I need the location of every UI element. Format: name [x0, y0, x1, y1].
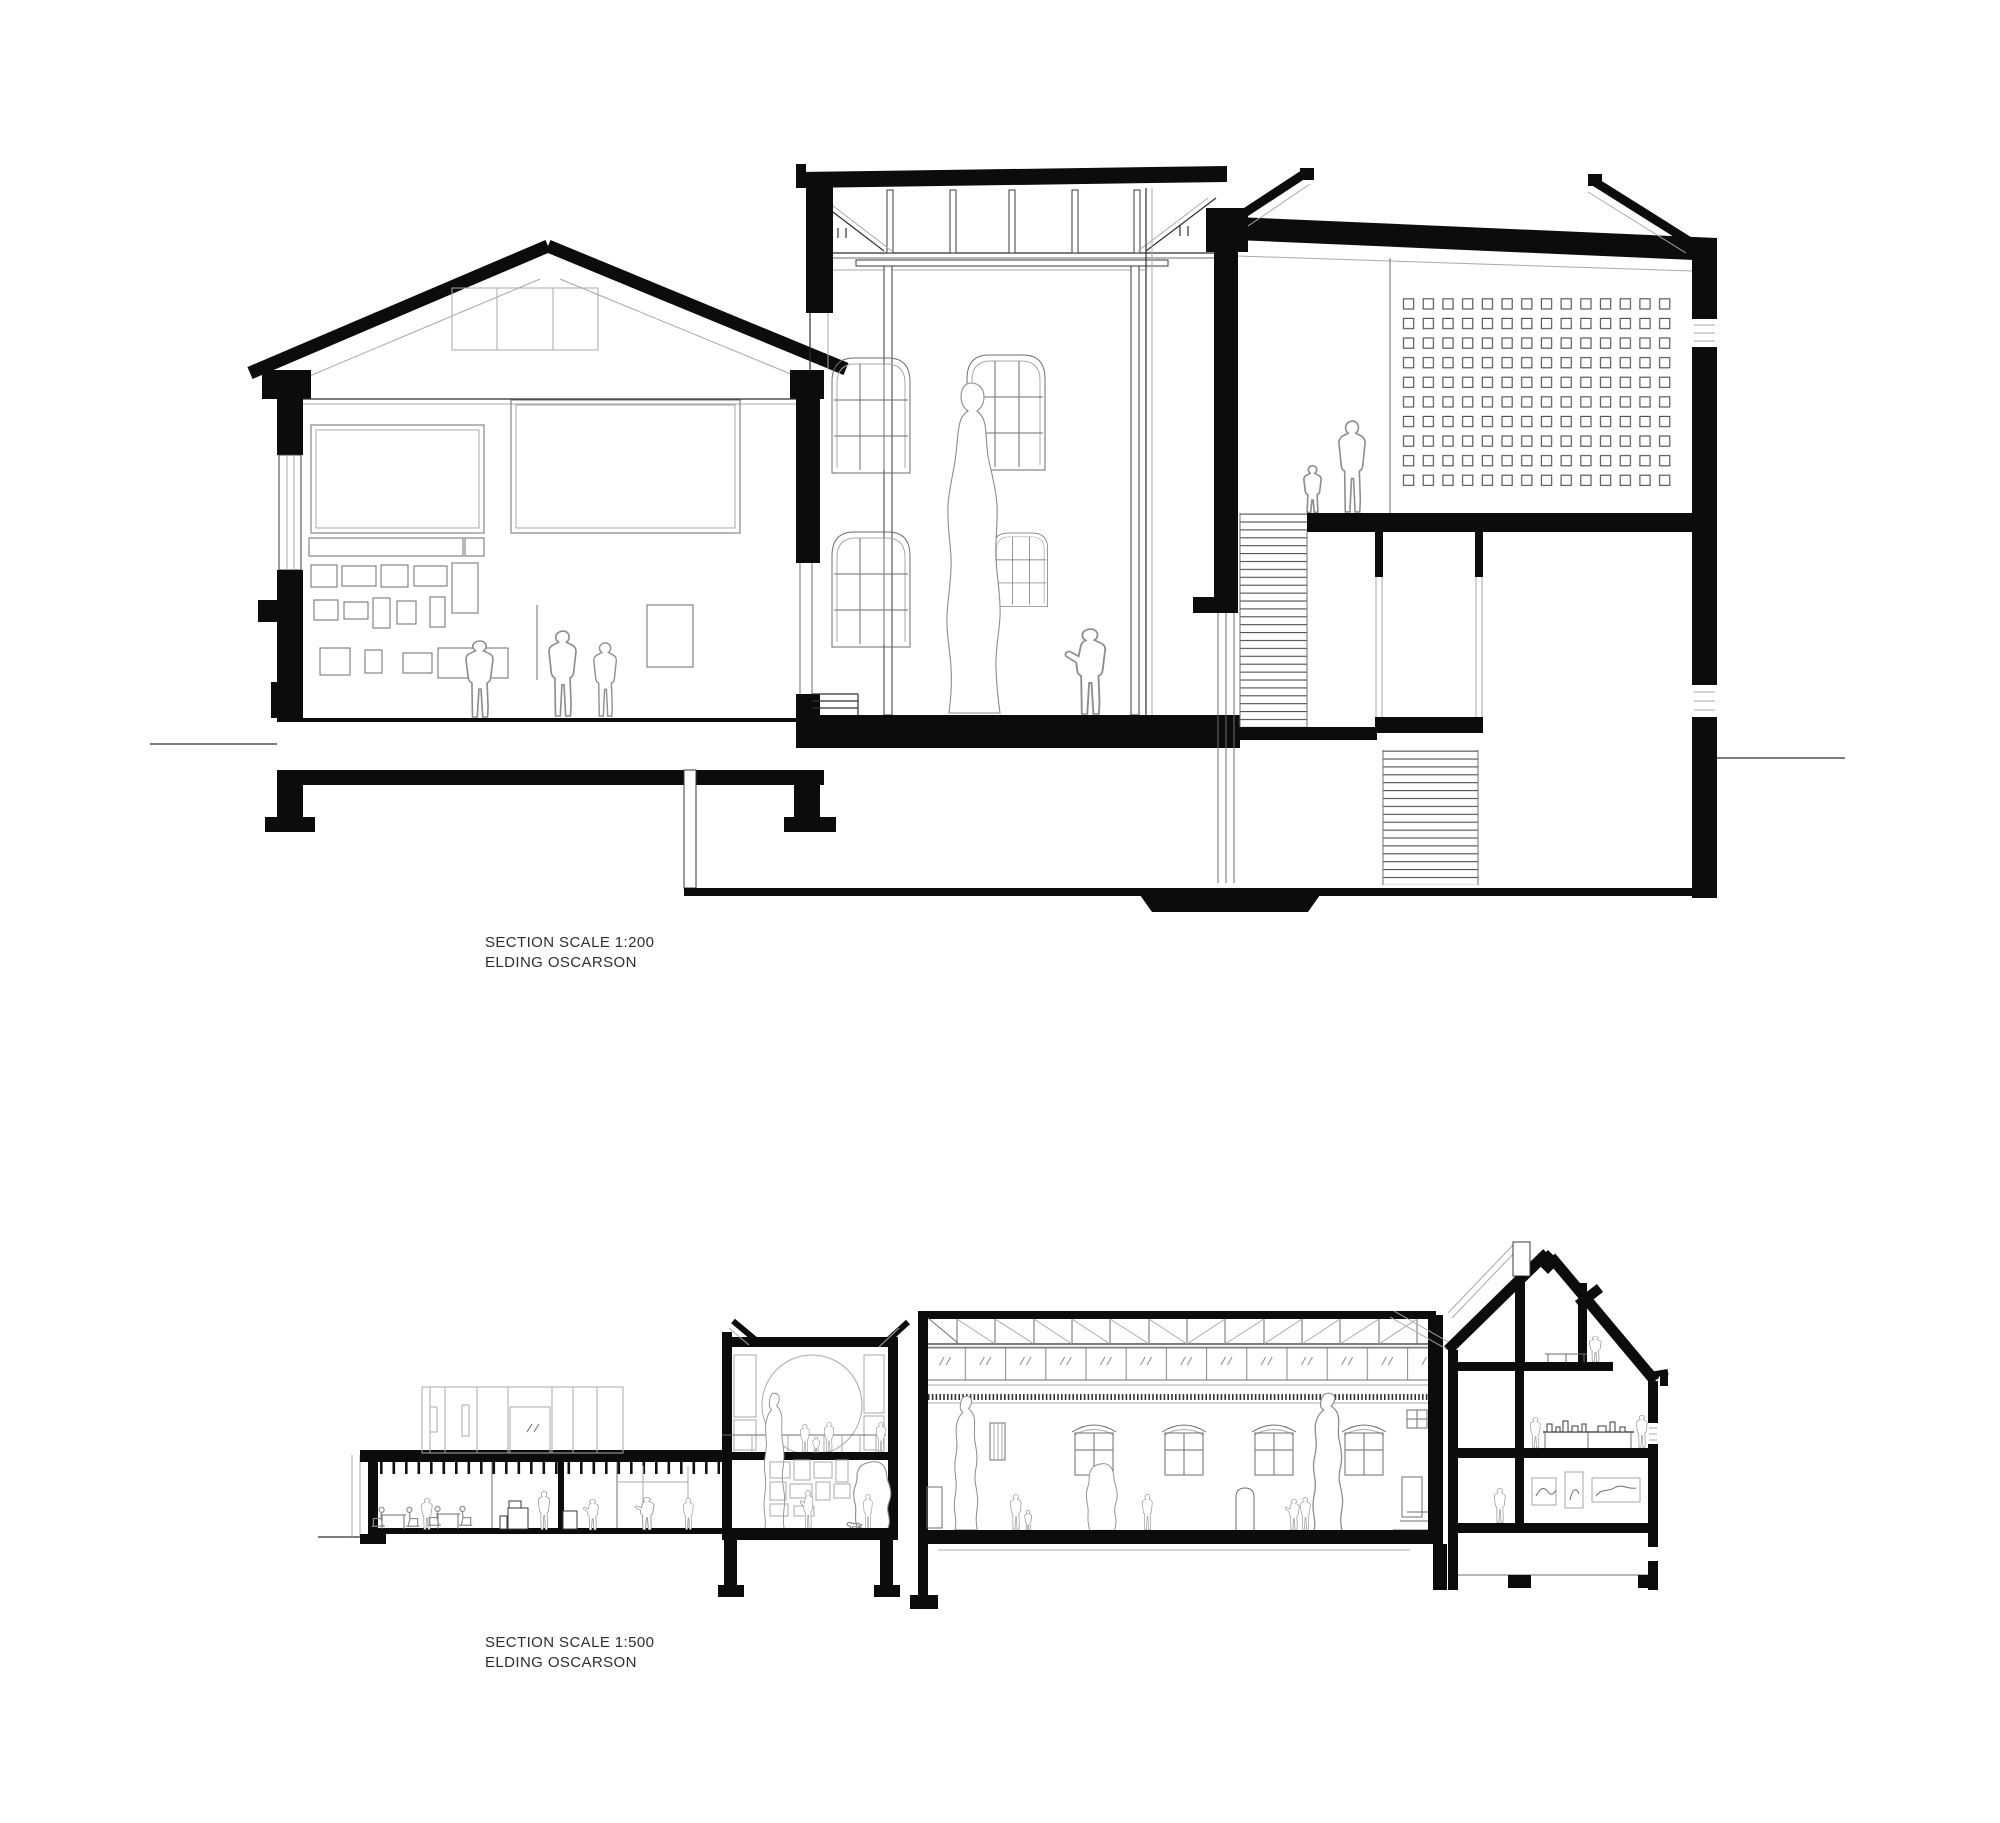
- basement-stair: [1383, 750, 1478, 885]
- townhouse-foundation: [1458, 1575, 1658, 1588]
- retaining-wall-lines: [352, 1455, 360, 1537]
- townhouse-right-wall: [1648, 1381, 1658, 1590]
- roof-and-truss: [796, 164, 1227, 266]
- sections-drawing: SECTION SCALE 1:200 ELDING OSCARSON: [0, 0, 2000, 1823]
- blob-sculpture: [854, 1462, 891, 1530]
- underground-cafe-wing: [360, 1450, 722, 1544]
- scale-label-500: SECTION SCALE 1:500: [485, 1634, 654, 1651]
- chimney: [1513, 1242, 1530, 1276]
- first-floor: [1448, 1458, 1658, 1533]
- hall-sculptures-and-people: [954, 1393, 1342, 1531]
- section-1-500: SECTION SCALE 1:500 ELDING OSCARSON: [318, 1242, 1668, 1671]
- gabled-townhouse: [1448, 1242, 1668, 1590]
- left-gallery-pavilion: [250, 246, 858, 832]
- second-floor: [1448, 1371, 1658, 1458]
- cafe-furniture-and-people: [372, 1491, 694, 1529]
- annex-building: [1193, 168, 1717, 898]
- townhouse-left-wall: [1448, 1350, 1458, 1590]
- perforated-screen-wall: [1395, 292, 1671, 488]
- annex-roof: [1206, 168, 1717, 271]
- sculpture-hall: [684, 164, 1710, 912]
- left-exterior-wall: [258, 399, 303, 718]
- visitor-figures: [466, 631, 616, 717]
- hall-floor-and-basement: [684, 715, 1710, 912]
- clerestory-band: [928, 1348, 1428, 1385]
- annex-floors-and-stairs: [1240, 513, 1692, 885]
- mezzanine-people: [800, 1422, 885, 1452]
- firm-label-200: ELDING OSCARSON: [485, 954, 637, 971]
- floor-and-foundation: [265, 718, 836, 832]
- arched-windows: [832, 355, 1048, 647]
- section-1-200: SECTION SCALE 1:200 ELDING OSCARSON: [150, 164, 1845, 971]
- firm-label-500: ELDING OSCARSON: [485, 1654, 637, 1671]
- right-party-wall: [796, 399, 820, 718]
- annex-left-wall: [1193, 247, 1238, 883]
- upper-stair: [1240, 513, 1307, 727]
- rooftop-glass-volume: [422, 1387, 623, 1453]
- arched-niche-gallery: [718, 1321, 908, 1597]
- architectural-sections-sheet: SECTION SCALE 1:200 ELDING OSCARSON: [0, 0, 2000, 1823]
- pitched-roof: [250, 246, 846, 399]
- roof-truss: [928, 1319, 1428, 1347]
- gesturing-visitor: [1065, 629, 1105, 714]
- shelf-objects: [1547, 1421, 1625, 1432]
- hall-windows: [927, 1410, 1428, 1530]
- adult-and-child-figures: [1304, 421, 1365, 512]
- artwork-wall: [309, 400, 740, 680]
- truss-roof-hall: [910, 1311, 1443, 1609]
- scale-label-200: SECTION SCALE 1:200: [485, 934, 654, 951]
- annex-right-wall: [1692, 238, 1717, 898]
